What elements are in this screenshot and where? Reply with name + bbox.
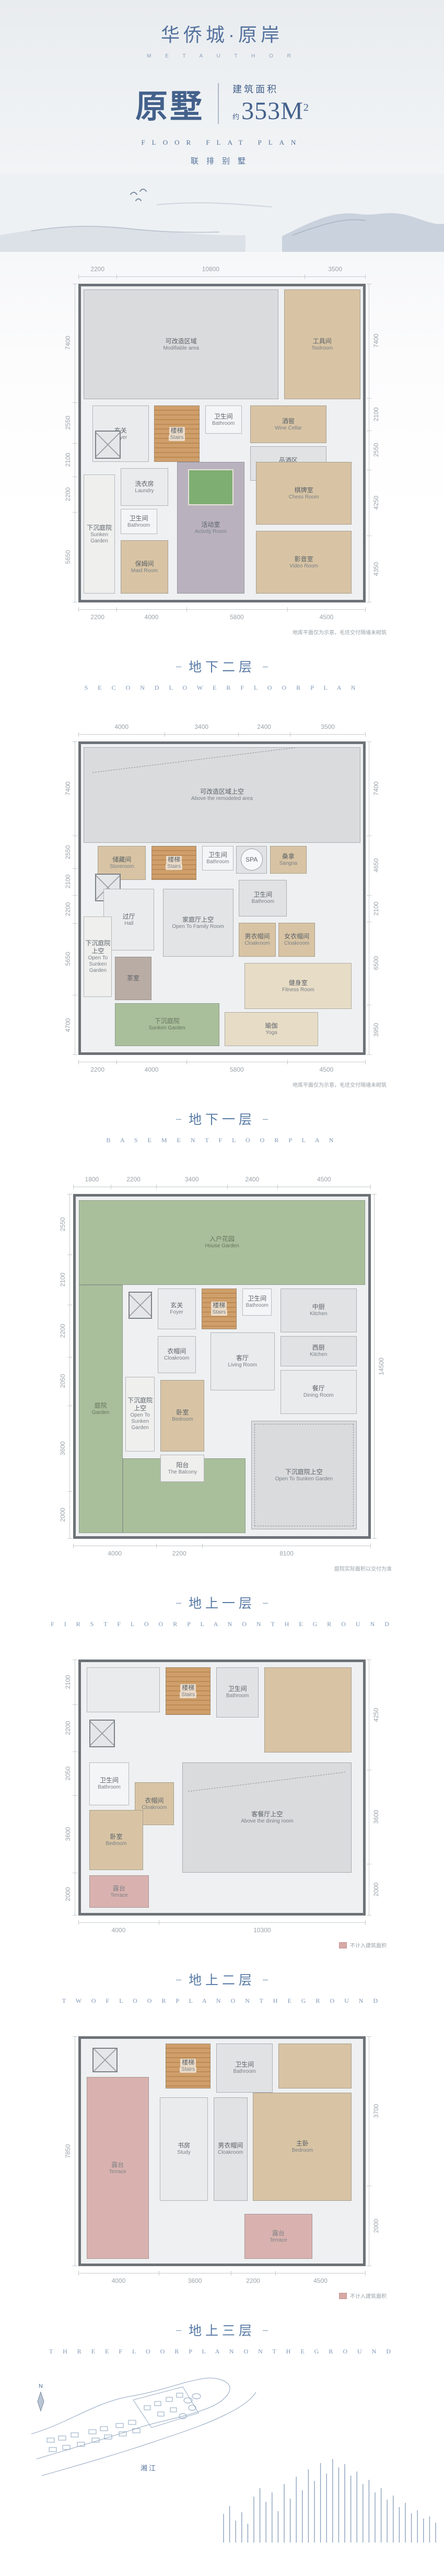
title-dash: – bbox=[176, 1974, 181, 1985]
title-dash: – bbox=[263, 2325, 268, 2336]
room-label-cn: 下沉庭院 bbox=[87, 524, 112, 532]
dimension-strip-top-f1: 18002200340024004500 bbox=[73, 1176, 371, 1190]
section-title-f3: –地上三层– bbox=[176, 2320, 268, 2339]
room-label-en: Bedroom bbox=[172, 1417, 193, 1423]
room-above-the-remodeled-area: 可改造区域上空Above the remodeled area bbox=[84, 747, 360, 843]
room-label-cn: 健身室 bbox=[289, 979, 308, 987]
room-label-cn: 洗衣房 bbox=[135, 480, 154, 488]
room-label-en: Bathroom bbox=[206, 859, 229, 865]
dimension-value: 4500 bbox=[275, 2270, 366, 2284]
legend-label: 不计入建筑面积 bbox=[350, 1941, 387, 1949]
room-above-the-dining-room: 客餐厅上空Above the dining room bbox=[182, 1762, 352, 1873]
dimension-value: 6500 bbox=[366, 922, 387, 1005]
room-label-en: Sangna bbox=[279, 861, 297, 867]
room-label-en: Stairs bbox=[180, 1692, 196, 1698]
section-title-f1: –地上一层– bbox=[176, 1593, 268, 1612]
dimension-value: 3700 bbox=[366, 2036, 387, 2186]
dimension-number: 7850 bbox=[64, 2144, 72, 2159]
dimension-value: 4650 bbox=[366, 836, 387, 895]
dimension-strip-bottom-b2: 2200400058004500 bbox=[78, 607, 366, 621]
room-label-cn: 庭院 bbox=[95, 1402, 107, 1410]
room-label-cn: 餐厅 bbox=[312, 1385, 325, 1393]
legend-not-counted: 不计入建筑面积 bbox=[339, 1941, 387, 1949]
title-block: 原墅 建筑面积 约 353M 2 bbox=[0, 80, 444, 127]
dimension-number: 2200 bbox=[64, 902, 72, 916]
room-label-en: Above the remodeled area bbox=[191, 796, 253, 802]
dimension-value: 2200 bbox=[78, 607, 116, 621]
dimension-number: 2100 bbox=[64, 875, 72, 889]
room-laundry: 洗衣房Laundry bbox=[121, 468, 169, 506]
dimension-value: 4500 bbox=[277, 1176, 371, 1190]
room-label-en: Chess Room bbox=[289, 494, 319, 501]
room-label-en: Bedroom bbox=[106, 1841, 127, 1847]
room-label-cn: 下沉庭院 bbox=[155, 1017, 180, 1025]
dimension-strip-right-f2: 425036002000 bbox=[366, 1660, 387, 1916]
room-label-en: Activity Room bbox=[195, 529, 227, 535]
section-title-cn: 地下一层 bbox=[189, 1109, 255, 1128]
brand-logo: 华侨城·原岸 bbox=[0, 20, 444, 47]
dimension-value: 5650 bbox=[57, 512, 78, 602]
floor-section-f3: 7850楼梯Stairs卫生间Bathroom露台Terrace书房Study男… bbox=[0, 2036, 444, 2355]
dimension-value: 2550 bbox=[57, 402, 78, 443]
room-label-cn: 卫生间 bbox=[208, 851, 227, 859]
dimension-strip-right-f1: 14500 bbox=[371, 1194, 392, 1539]
room-label-en: Hall bbox=[124, 921, 133, 927]
room-room-area bbox=[264, 1667, 352, 1753]
river-label: 湘江 bbox=[141, 2464, 157, 2472]
dimension-number: 7400 bbox=[64, 782, 72, 796]
room-label-cn: 卫生间 bbox=[130, 515, 148, 523]
room-label-cn: 棋牌室 bbox=[295, 486, 313, 494]
room-label-cn: 过厅 bbox=[123, 913, 135, 921]
dimension-value: 2050 bbox=[52, 1357, 73, 1406]
dimension-number: 2100 bbox=[64, 453, 72, 467]
room-label-en: Cloakroom bbox=[164, 1355, 189, 1362]
dimension-strip-bottom-b1: 2200400058004500 bbox=[78, 1059, 366, 1073]
room-label-en: Bathroom bbox=[212, 421, 235, 427]
dimension-value: 2100 bbox=[57, 443, 78, 477]
room-terrace: 露台Terrace bbox=[244, 2214, 312, 2259]
room-room-area: 茶室 bbox=[115, 957, 151, 1000]
dimension-value: 7400 bbox=[57, 741, 78, 836]
room-label-en: Stairs bbox=[169, 435, 185, 441]
room-the-balcony: 阳台The Balcony bbox=[160, 1455, 204, 1482]
dimension-value: 4500 bbox=[287, 607, 366, 621]
dimension-value: 2200 bbox=[57, 1704, 78, 1751]
room-cloakroom: 女衣帽间Cloakroom bbox=[278, 923, 315, 957]
room-label-en: Open To Sunken Garden bbox=[84, 955, 111, 974]
dimension-value: 2000 bbox=[52, 1491, 73, 1539]
room-label-en: Cloakroom bbox=[244, 941, 270, 947]
room-label-en: Maid Room bbox=[131, 568, 158, 574]
room-label-en: Bathroom bbox=[233, 2069, 256, 2075]
room-label-cn: 中厨 bbox=[312, 1303, 325, 1311]
dimension-strip-left-f1: 255021002200205036002000 bbox=[52, 1194, 73, 1539]
dimension-value: 2200 bbox=[78, 1059, 116, 1073]
room-label-cn: 保姆间 bbox=[135, 560, 154, 568]
room-cloakroom: 男衣帽间Cloakroom bbox=[214, 2097, 248, 2201]
room-label-en: Stairs bbox=[180, 2067, 196, 2073]
dimension-number: 4650 bbox=[372, 858, 380, 873]
floor-plan-f3: 楼梯Stairs卫生间Bathroom露台Terrace书房Study男衣帽间C… bbox=[78, 2036, 366, 2266]
room-sunken-garden: 下沉庭院Sunken Garden bbox=[115, 1003, 219, 1047]
room-label-en: The Balcony bbox=[168, 1469, 197, 1476]
room-label-en: Terrace bbox=[270, 2237, 287, 2244]
section-title-en: S E C O N D L O W E R F L O O R P L A N bbox=[85, 684, 360, 692]
room-bathroom: 卫生间Bathroom bbox=[216, 2044, 273, 2093]
room-label-en: Terrace bbox=[109, 2169, 126, 2175]
title-dash: – bbox=[263, 1113, 268, 1124]
legend-not-counted: 不计入建筑面积 bbox=[339, 2292, 387, 2300]
title-dash: – bbox=[176, 1597, 181, 1608]
floor-plan-sections: 220010800350074002550210022005650可改造区域Mo… bbox=[0, 265, 444, 2355]
dimension-value: 5650 bbox=[57, 923, 78, 995]
dimension-number: 2000 bbox=[59, 1508, 66, 1522]
room-label-cn: 桑拿 bbox=[282, 853, 295, 861]
legend-label: 不计入建筑面积 bbox=[350, 2292, 387, 2300]
room-label-cn: 书房 bbox=[178, 2142, 190, 2150]
dimension-value: 2100 bbox=[366, 398, 387, 431]
room-label-cn: SPA bbox=[246, 856, 258, 864]
plan-disclaimer: 地库平面仅为示意，毛坯交付隔墙未砌筑 bbox=[293, 628, 387, 636]
room-label-cn: 茶室 bbox=[127, 974, 139, 982]
room-label-cn: 玄关 bbox=[170, 1302, 183, 1309]
dimension-value: 2400 bbox=[238, 723, 290, 737]
dimension-number: 3700 bbox=[372, 2104, 380, 2118]
dimension-value: 3500 bbox=[290, 723, 366, 737]
room-bathroom: 卫生间Bathroom bbox=[202, 846, 233, 871]
dimension-value: 7400 bbox=[366, 741, 387, 836]
dimension-strip-left-f2: 21002200205036002000 bbox=[57, 1660, 78, 1916]
dimension-number: 7400 bbox=[372, 334, 380, 348]
dimension-number: 2000 bbox=[372, 2219, 380, 2233]
dimension-value: 2100 bbox=[57, 1660, 78, 1704]
dimension-number: 6500 bbox=[372, 956, 380, 970]
room-cloakroom: 衣帽间Cloakroom bbox=[158, 1336, 196, 1374]
room-house-garden: 入户花园House Garden bbox=[79, 1200, 366, 1285]
room-bathroom: 卫生间Bathroom bbox=[205, 405, 242, 434]
room-living-room: 客厅Living Room bbox=[211, 1332, 275, 1390]
dimension-value: 2550 bbox=[366, 431, 387, 470]
dimension-number: 4250 bbox=[372, 495, 380, 509]
dimension-strip-right-b1: 74004650210065003950 bbox=[366, 741, 387, 1055]
room-label-en: Bathroom bbox=[252, 899, 274, 905]
room-wine-cellar: 酒窖Wine Cellar bbox=[250, 405, 326, 443]
room-cloakroom: 男衣帽间Cloakroom bbox=[239, 923, 275, 957]
dimension-value: 4250 bbox=[366, 470, 387, 536]
dimension-number: 5650 bbox=[64, 952, 72, 966]
room-label-en: Yoga bbox=[265, 1030, 277, 1036]
dimension-strip-right-b2: 74002100255042504350 bbox=[366, 284, 387, 602]
room-label-cn: 下沉庭院上空 bbox=[285, 1468, 323, 1476]
room-garden: 庭院Garden bbox=[79, 1285, 123, 1533]
room-label-cn: 客餐厅上空 bbox=[251, 1811, 283, 1818]
room-elevator-shaft bbox=[89, 1720, 115, 1747]
room-label-en: House Garden bbox=[205, 1243, 239, 1249]
floor-section-f2: 21002200205036002000楼梯Stairs卫生间Bathroom卫… bbox=[0, 1660, 444, 2005]
subtitle-cn: 联排别墅 bbox=[0, 155, 444, 166]
dimension-value: 2000 bbox=[366, 1864, 387, 1916]
room-study: 书房Study bbox=[160, 2097, 208, 2201]
dimension-value: 3400 bbox=[156, 1176, 227, 1190]
title-dash: – bbox=[263, 1597, 268, 1608]
plan-row-b1: 740025502100220056504700可改造区域上空Above the… bbox=[57, 741, 387, 1055]
room-label-cn: 可改造区域上空 bbox=[200, 788, 244, 796]
room-kitchen: 中厨Kitchen bbox=[281, 1289, 357, 1333]
room-label-cn: 下沉庭院上空 bbox=[126, 1397, 154, 1412]
section-title-cn: 地上三层 bbox=[189, 2320, 255, 2339]
room-label-cn: 可改造区域 bbox=[166, 338, 197, 345]
title-dash: – bbox=[176, 1113, 181, 1124]
dimension-value: 2000 bbox=[366, 2186, 387, 2266]
dimension-value: 7400 bbox=[366, 284, 387, 398]
room-label-en: Video Room bbox=[289, 563, 318, 570]
legend-color-swatch bbox=[339, 2293, 347, 2299]
floor-plan-b1: 可改造区域上空Above the remodeled area储藏间Storer… bbox=[78, 741, 366, 1055]
room-label-en: Study bbox=[177, 2150, 191, 2156]
dimension-value: 4000 bbox=[78, 1920, 159, 1934]
room-room-area bbox=[278, 2044, 352, 2088]
dimension-value: 10300 bbox=[159, 1920, 366, 1934]
room-bathroom: 卫生间Bathroom bbox=[121, 509, 157, 534]
dimension-value: 3400 bbox=[165, 723, 238, 737]
dimension-value: 4000 bbox=[78, 2270, 159, 2284]
room-label-en: Fitness Room bbox=[282, 987, 314, 993]
room-label-en: Bathroom bbox=[246, 1303, 268, 1309]
room-label-cn: 工具间 bbox=[313, 338, 332, 345]
room-label-cn: 露台 bbox=[113, 1885, 125, 1893]
dimension-number: 5650 bbox=[64, 550, 72, 564]
section-title-en: T H R E E F L O O R P L A N O N T H E G … bbox=[49, 2348, 395, 2355]
room-label-cn: 西厨 bbox=[312, 1344, 325, 1352]
room-label-cn: 露台 bbox=[272, 2230, 285, 2237]
room-open-to-sunken-garden: 下沉庭院上空Open To Sunken Garden bbox=[84, 916, 112, 996]
section-title-en: B A S E M E N T F L O O R P L A N bbox=[107, 1136, 338, 1144]
dimension-value: 3600 bbox=[57, 1795, 78, 1873]
dimension-value: 10800 bbox=[116, 265, 305, 280]
dimension-value: 2200 bbox=[57, 895, 78, 923]
room-label-cn: 卫生间 bbox=[235, 2061, 254, 2069]
dimension-number: 2550 bbox=[372, 443, 380, 457]
dimension-value: 4250 bbox=[366, 1660, 387, 1770]
dimension-value: 2050 bbox=[57, 1751, 78, 1795]
dimension-strip-bottom-f3: 4000360022004500 bbox=[78, 2270, 366, 2284]
room-label-en: Kitchen bbox=[310, 1311, 327, 1317]
room-open-to-sunken-garden: 下沉庭院上空Open To Sunken Garden bbox=[251, 1421, 357, 1529]
room-bedroom: 卧室Bedroom bbox=[89, 1810, 143, 1870]
room-open-to-sunken-garden: 下沉庭院上空Open To Sunken Garden bbox=[125, 1377, 155, 1452]
room-label-en: Bedroom bbox=[292, 2148, 313, 2154]
room-label-cn: 露台 bbox=[111, 2161, 124, 2169]
dimension-number: 2550 bbox=[59, 1217, 66, 1232]
plan-row-b2: 74002550210022005650可改造区域Modifiable area… bbox=[57, 284, 387, 602]
room-label-cn: 楼梯 bbox=[180, 1684, 196, 1692]
area-superscript: 2 bbox=[303, 102, 309, 114]
dimension-number: 2100 bbox=[64, 1675, 72, 1689]
dimension-number: 2050 bbox=[64, 1767, 72, 1781]
room-label-cn: 下沉庭院上空 bbox=[84, 939, 111, 955]
dimension-number: 7400 bbox=[372, 782, 380, 796]
room-stairs: 楼梯Stairs bbox=[154, 405, 199, 462]
dimension-value: 2000 bbox=[57, 1873, 78, 1916]
dimension-value: 5800 bbox=[186, 1059, 287, 1073]
room-stairs: 楼梯Stairs bbox=[151, 846, 196, 880]
room-chess-room: 棋牌室Chess Room bbox=[256, 462, 352, 525]
room-label-en: Above the dining room bbox=[241, 1818, 293, 1825]
dimension-value: 4000 bbox=[116, 607, 186, 621]
section-title-cn: 地下二层 bbox=[189, 657, 255, 676]
room-label-cn: 卫生间 bbox=[253, 891, 272, 899]
dimension-value: 14500 bbox=[371, 1194, 392, 1539]
room-label-cn: 影音室 bbox=[295, 555, 313, 563]
room-label-en: Open To Sunken Garden bbox=[126, 1412, 154, 1431]
dimension-value: 5800 bbox=[186, 607, 287, 621]
dimension-value: 2100 bbox=[57, 868, 78, 895]
room-label-cn: 女衣帽间 bbox=[284, 933, 309, 941]
room-label-cn: 卫生间 bbox=[248, 1295, 266, 1303]
page-title: 原墅 bbox=[135, 80, 204, 127]
room-label-cn: 楼梯 bbox=[211, 1302, 227, 1309]
area-label: 建筑面积 bbox=[232, 82, 309, 96]
room-stairs: 楼梯Stairs bbox=[166, 2044, 211, 2088]
dimension-value: 4000 bbox=[73, 1543, 156, 1557]
brand-logo-en: M E T A U T H O R bbox=[0, 53, 444, 59]
dimension-number: 7400 bbox=[64, 336, 72, 350]
plan-row-f2: 21002200205036002000楼梯Stairs卫生间Bathroom卫… bbox=[57, 1660, 387, 1916]
dimension-number: 2200 bbox=[64, 488, 72, 502]
dimension-value: 2200 bbox=[231, 2270, 275, 2284]
dimension-strip-bottom-f1: 400022008100 bbox=[73, 1543, 371, 1557]
dimension-number: 14500 bbox=[378, 1357, 385, 1375]
room-label-cn: 衣帽间 bbox=[145, 1797, 163, 1805]
room-open-to-family-room: 家庭厅上空Open To Family Room bbox=[163, 889, 233, 957]
area-prefix: 约 bbox=[232, 111, 239, 121]
room-sangna: 桑拿Sangna bbox=[270, 846, 307, 874]
room-label-cn: 楼梯 bbox=[180, 2059, 196, 2067]
dimension-strip-left-b2: 74002550210022005650 bbox=[57, 284, 78, 602]
room-label-en: Sunken Garden bbox=[149, 1025, 185, 1031]
room-label-en: Sunken Garden bbox=[84, 532, 114, 544]
room-label-en: Toolroom bbox=[311, 345, 333, 352]
room-label-cn: 卫生间 bbox=[100, 1777, 119, 1784]
room-label-en: Open To Sunken Garden bbox=[275, 1476, 333, 1482]
dimension-value: 3950 bbox=[366, 1005, 387, 1055]
room-label-cn: 瑜伽 bbox=[265, 1022, 277, 1030]
dimension-value: 3500 bbox=[305, 265, 366, 280]
title-dash: – bbox=[263, 1974, 268, 1985]
room-bedroom: 主卧Bedroom bbox=[253, 2093, 352, 2200]
dimension-value: 2200 bbox=[156, 1543, 202, 1557]
room-label-en: Storeroom bbox=[110, 864, 134, 870]
room-label-cn: 卧室 bbox=[176, 1409, 189, 1417]
section-title-b1: –地下一层– bbox=[176, 1109, 268, 1128]
dimension-value: 1800 bbox=[73, 1176, 111, 1190]
header: 华侨城·原岸 M E T A U T H O R 原墅 建筑面积 约 353M … bbox=[0, 0, 444, 166]
room-stairs: 楼梯Stairs bbox=[202, 1289, 237, 1329]
room-modifiable-area: 可改造区域Modifiable area bbox=[84, 289, 278, 399]
room-label-en: Cloakroom bbox=[142, 1805, 167, 1811]
dimension-number: 3600 bbox=[372, 1810, 380, 1824]
dimension-value: 4700 bbox=[57, 995, 78, 1055]
dimension-value: 2100 bbox=[52, 1255, 73, 1305]
room-label-en: Cloakroom bbox=[218, 2150, 243, 2156]
room-foyer: 玄关Foyer bbox=[158, 1289, 196, 1329]
room-terrace: 露台Terrace bbox=[87, 2077, 149, 2259]
room-terrace: 露台Terrace bbox=[89, 1875, 148, 1908]
room-label-en: Living Room bbox=[228, 1362, 257, 1368]
room-sunken-garden: 下沉庭院Sunken Garden bbox=[84, 474, 114, 594]
room-label-cn: 家庭厅上空 bbox=[182, 916, 214, 924]
dimension-value: 4000 bbox=[116, 1059, 186, 1073]
dimension-strip-top-b1: 4000340024003500 bbox=[78, 723, 366, 737]
room-label-en: Garden bbox=[92, 1410, 109, 1416]
section-title-b2: –地下二层– bbox=[176, 657, 268, 676]
dimension-value: 3600 bbox=[159, 2270, 231, 2284]
area-block: 建筑面积 约 353M 2 bbox=[232, 82, 309, 125]
room-video-room: 影音室Video Room bbox=[256, 531, 352, 594]
decorative-line-pattern bbox=[219, 2439, 444, 2544]
room-room-area bbox=[87, 1667, 160, 1712]
room-label-en: Modifiable area bbox=[163, 345, 199, 352]
dimension-number: 4700 bbox=[64, 1018, 72, 1032]
room-label-en: Stairs bbox=[166, 864, 182, 870]
room-label-en: Stairs bbox=[211, 1309, 228, 1316]
title-dash: – bbox=[263, 661, 268, 672]
dimension-number: 2200 bbox=[64, 1721, 72, 1735]
dimension-value: 4350 bbox=[366, 536, 387, 603]
room-dining-room: 餐厅Dining Room bbox=[281, 1370, 357, 1414]
dimension-number: 3600 bbox=[64, 1827, 72, 1841]
title-divider bbox=[218, 83, 219, 124]
dimension-number: 4350 bbox=[372, 562, 380, 576]
dimension-value: 4000 bbox=[78, 723, 165, 737]
room-kitchen: 西厨Kitchen bbox=[281, 1336, 357, 1367]
dimension-number: 2000 bbox=[64, 1887, 72, 1901]
dimension-number: 2550 bbox=[64, 845, 72, 859]
room-bathroom: 卫生间Bathroom bbox=[239, 880, 287, 917]
room-label-cn: 主卧 bbox=[296, 2140, 309, 2148]
dimension-number: 2050 bbox=[59, 1374, 66, 1388]
floor-plan-f2: 楼梯Stairs卫生间Bathroom卫生间Bathroom衣帽间Cloakro… bbox=[78, 1660, 366, 1916]
room-fitness-room: 健身室Fitness Room bbox=[244, 963, 352, 1009]
brochure-page: 华侨城·原岸 M E T A U T H O R 原墅 建筑面积 约 353M … bbox=[0, 0, 444, 2576]
dimension-value: 2200 bbox=[78, 265, 116, 280]
dimension-strip-right-f3: 37002000 bbox=[366, 2036, 387, 2266]
room-bathroom: 卫生间Bathroom bbox=[89, 1762, 129, 1805]
room-label-cn: 客厅 bbox=[236, 1354, 249, 1362]
plan-row-f3: 7850楼梯Stairs卫生间Bathroom露台Terrace书房Study男… bbox=[57, 2036, 387, 2266]
room-label-en: Bathroom bbox=[98, 1784, 120, 1791]
dimension-strip-bottom-f2: 400010300 bbox=[78, 1920, 366, 1934]
floor-section-b1: 4000340024003500740025502100220056504700… bbox=[0, 723, 444, 1144]
room-activity-room: 活动室Activity Room bbox=[177, 462, 245, 594]
room-label-en: Kitchen bbox=[310, 1352, 327, 1358]
dimension-number: 2100 bbox=[372, 901, 380, 915]
room-label-en: Cloakroom bbox=[284, 941, 309, 947]
room-label-en: Open To Family Room bbox=[172, 924, 224, 930]
dimension-value: 2400 bbox=[227, 1176, 277, 1190]
dimension-strip-left-f3: 7850 bbox=[57, 2036, 78, 2266]
legend-color-swatch bbox=[339, 1942, 347, 1948]
dimension-number: 2200 bbox=[59, 1324, 66, 1338]
dimension-number: 2550 bbox=[64, 416, 72, 430]
section-title-f2: –地上二层– bbox=[176, 1970, 268, 1989]
room-label-cn: 入户花园 bbox=[209, 1235, 235, 1243]
dimension-value: 3600 bbox=[52, 1406, 73, 1491]
dimension-value: 7850 bbox=[57, 2036, 78, 2266]
room-label-cn: 卧室 bbox=[110, 1833, 122, 1841]
room-bathroom: 卫生间Bathroom bbox=[216, 1667, 259, 1718]
